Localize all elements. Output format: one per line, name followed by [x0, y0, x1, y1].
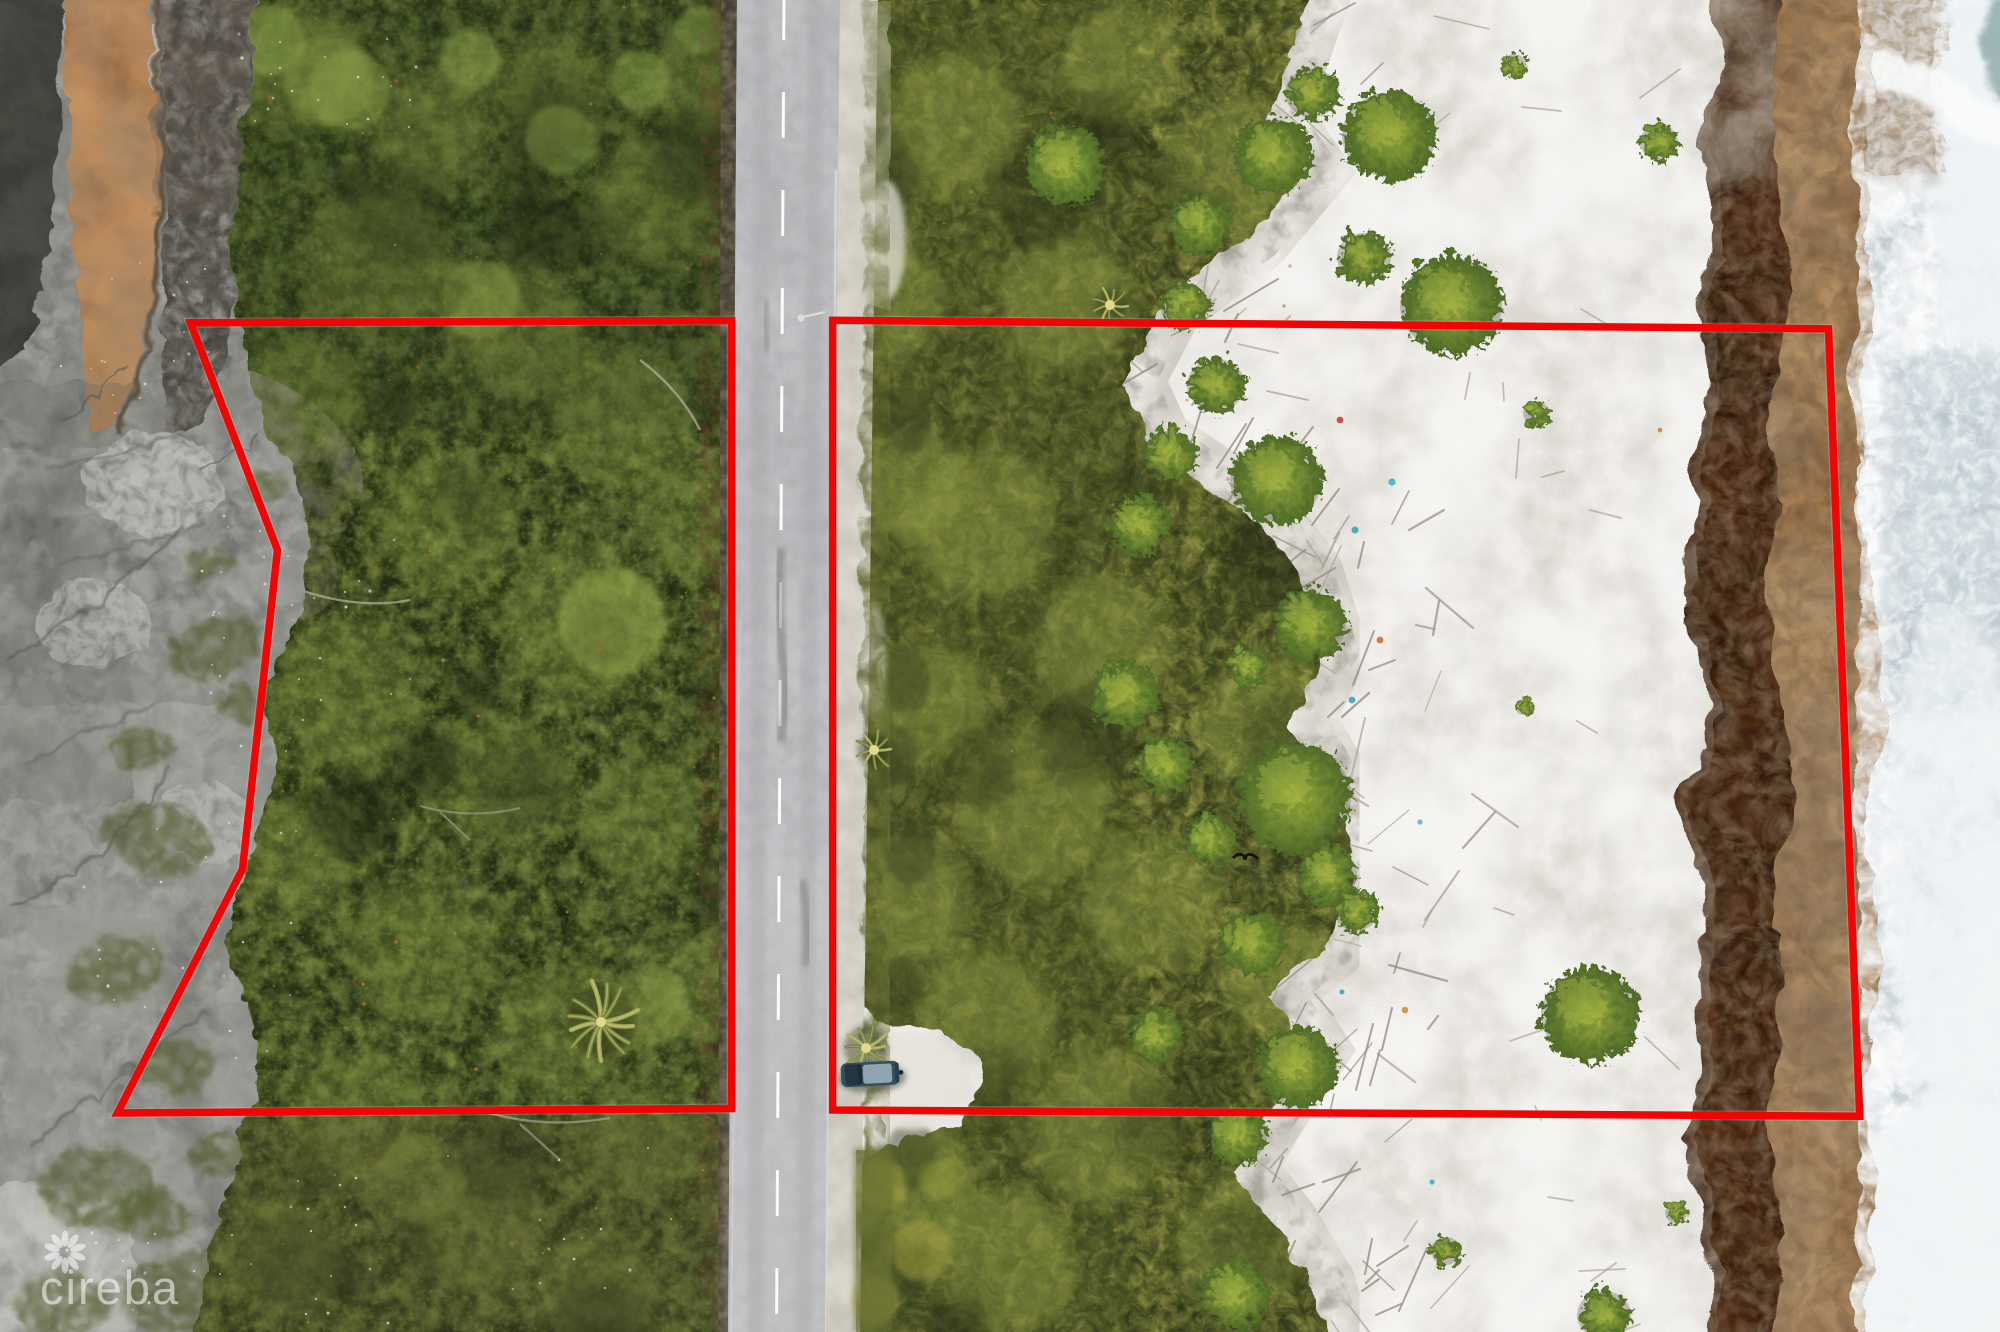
svg-text:cireba: cireba: [40, 1261, 180, 1314]
